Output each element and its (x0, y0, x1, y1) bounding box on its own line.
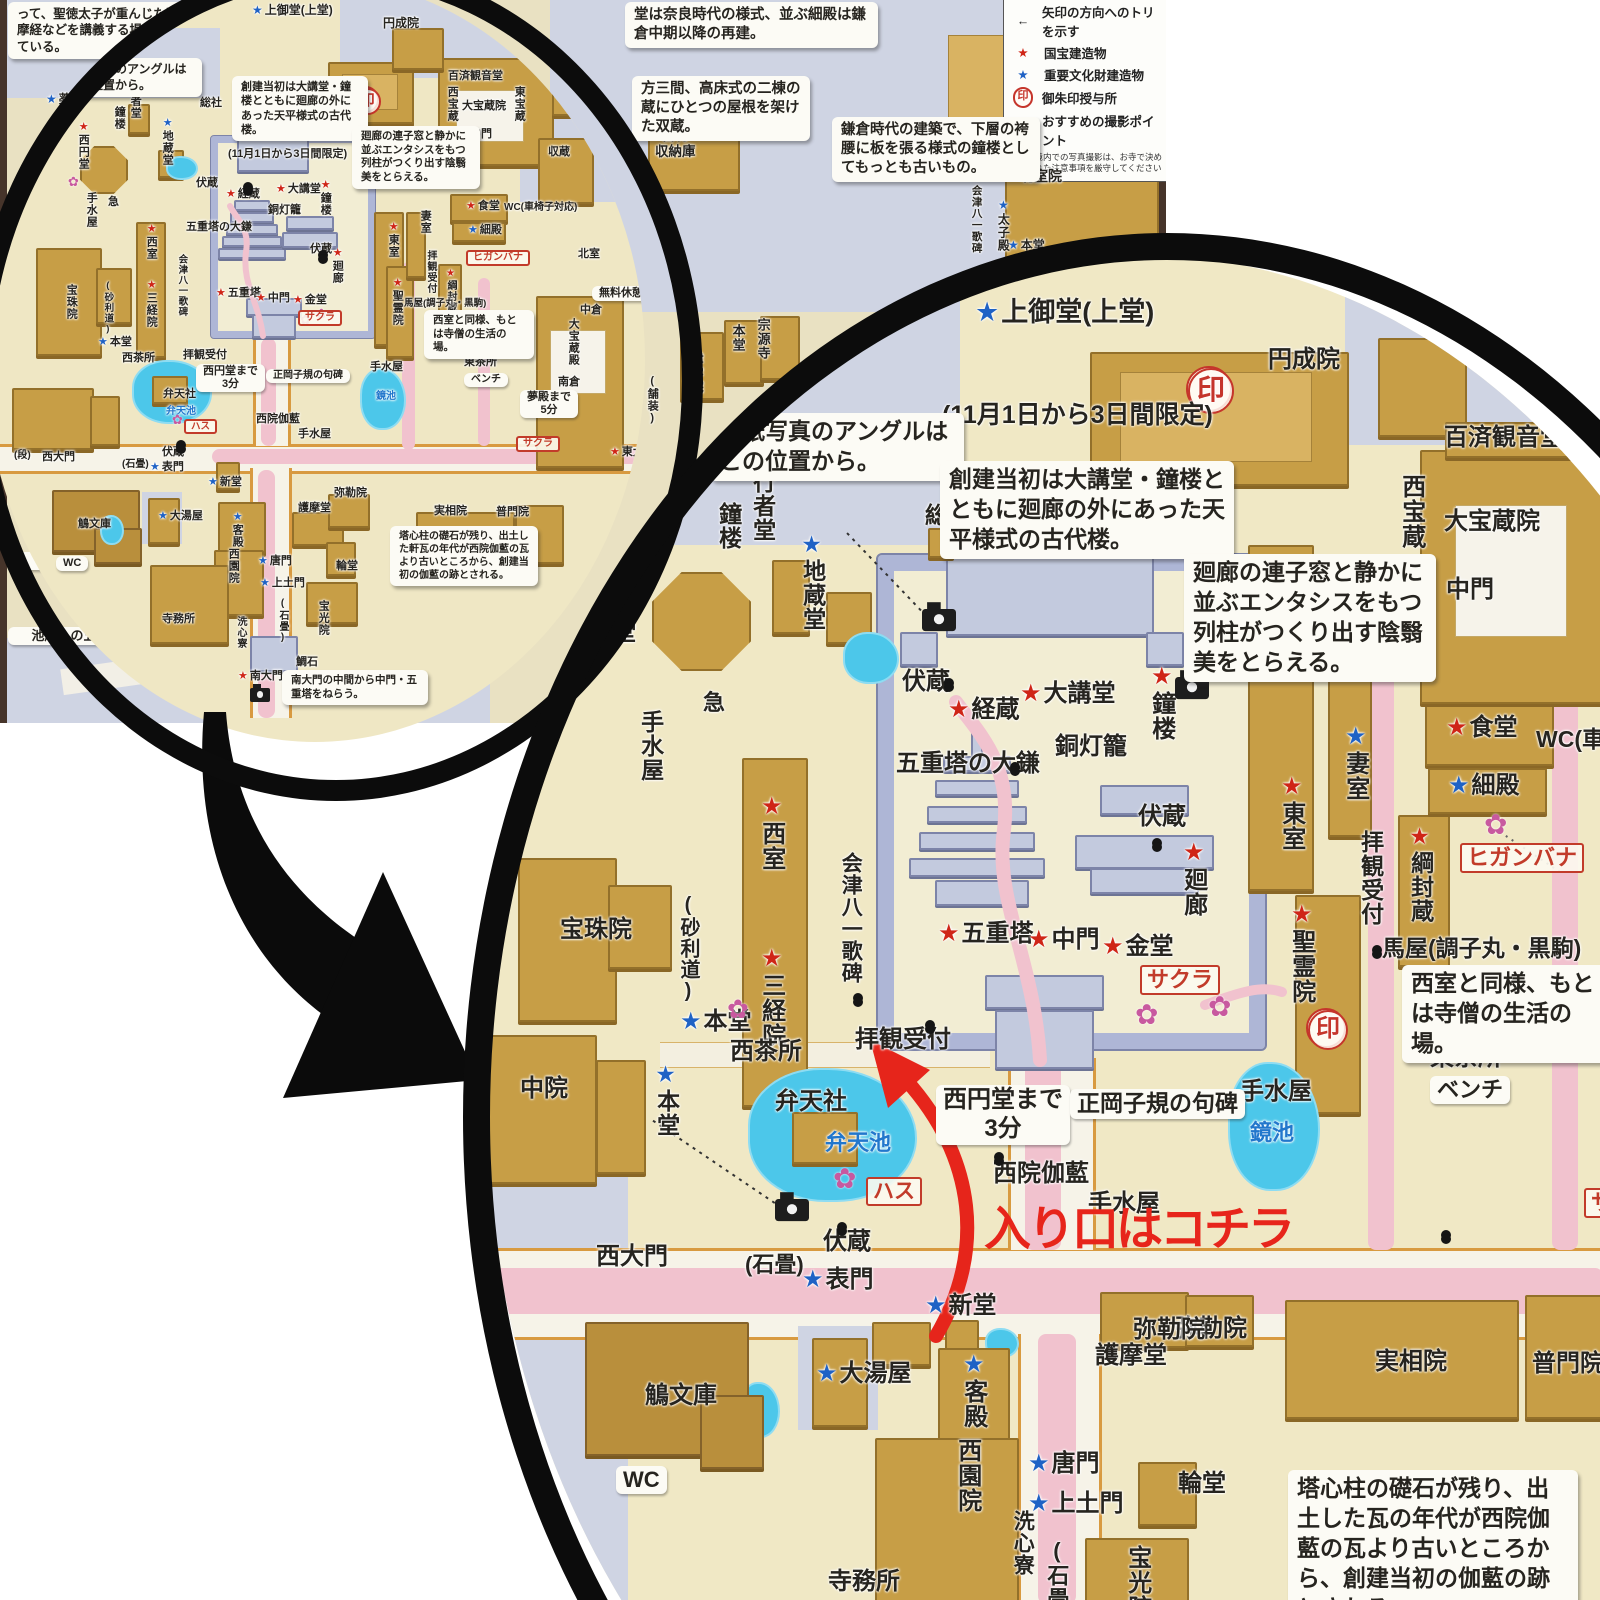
star-red-icon: ★ (1012, 45, 1034, 60)
pagoda (935, 780, 1019, 796)
map-label: 護摩堂 (298, 502, 331, 515)
star-red-icon: ★ (610, 446, 620, 458)
map-label: 西園院 (952, 1438, 981, 1513)
star-red-icon: ★ (145, 222, 157, 236)
map-label: 大宝蔵殿 (566, 318, 579, 366)
star-blue-icon: ★ (46, 92, 57, 106)
map-label: (石畳) (122, 459, 149, 471)
map-label: 西円堂まで 3分 (936, 1085, 1070, 1145)
map-label: 西大門 (42, 451, 75, 464)
star-blue-icon: ★ (689, 336, 704, 352)
map-label: ★三経院 (144, 278, 157, 328)
map-label: 鏡池 (1250, 1120, 1294, 1146)
map-label: 鵤文庫 (78, 518, 111, 531)
map-label: 創建当初は大講堂・鐘楼とともに廻廊の外にあった天平様式の古代楼。 (940, 461, 1234, 559)
map-label: ★新堂 (208, 476, 242, 489)
map-label: 洗心寮 (1010, 1510, 1035, 1576)
map-label: 収蔵 (548, 146, 570, 159)
legend-row: ← 矢印の方向へのトリを示す (1012, 2, 1162, 40)
star-red-icon: ★ (445, 268, 456, 280)
map-label: 夢殿まで 5分 (520, 390, 578, 418)
map-label: ★東室 (386, 220, 399, 258)
map-label: 輪堂 (336, 560, 358, 573)
map-label: 会津八一歌碑 (176, 254, 187, 317)
legend-row: ★ 国宝建造物 (1012, 43, 1162, 62)
map-label: 鐘楼 (714, 502, 742, 550)
map-label: ハス (866, 1177, 922, 1206)
star-red-icon: ★ (938, 920, 960, 947)
map-label: 寺務所 (162, 613, 195, 626)
map-label: 拝観受付 (855, 1026, 951, 1055)
map-label: 急 (703, 690, 725, 716)
star-blue-icon: ★ (1012, 67, 1034, 82)
map-label: 大宝蔵院 (462, 100, 506, 113)
map-label: 西院伽藍 (993, 1160, 1089, 1189)
kondo-hall (286, 216, 334, 230)
star-red-icon: ★ (758, 792, 785, 821)
map-label: (11月1日から3日間限定) (942, 400, 1213, 430)
map-label: (11月1日から3日間限定) (228, 148, 347, 161)
map-label: 急 (108, 196, 119, 209)
building (463, 1035, 597, 1184)
map-label: ★南大門 (238, 670, 283, 683)
map-label: 実相院 (434, 505, 467, 518)
map-label: ヒガンバナ (1460, 843, 1584, 873)
map-label: ★五重塔 (938, 920, 1034, 949)
map-label: ヒガンバナ (466, 250, 530, 266)
flower-icon: ✿ (172, 412, 183, 428)
legend-label: 御朱印授与所 (1042, 88, 1117, 107)
flower-icon: ✿ (833, 1162, 856, 1196)
legend-label: 国宝建造物 (1044, 43, 1107, 62)
star-blue-icon: ★ (258, 555, 268, 567)
pagoda (927, 806, 1027, 823)
map-label: 正岡子規の句碑 (266, 369, 350, 383)
marker-dot (1372, 945, 1382, 955)
flower-icon: ✿ (1208, 990, 1231, 1024)
map-label: (砂利道) (102, 280, 113, 336)
star-blue-icon: ★ (161, 116, 173, 130)
star-blue-icon: ★ (1028, 1450, 1050, 1477)
building (306, 582, 358, 624)
map-label: ★上御堂(上堂) (975, 296, 1154, 328)
star-red-icon: ★ (1180, 838, 1207, 867)
map-label: ★西室 (144, 222, 157, 260)
star-red-icon: ★ (77, 120, 89, 134)
map-label: ★食堂 (1446, 714, 1518, 743)
legend-row: ★ 重要文化財建造物 (1012, 65, 1162, 84)
star-red-icon: ★ (1446, 714, 1468, 741)
map-label: ★客殿 (958, 1350, 987, 1429)
flower-icon: ✿ (727, 994, 749, 1025)
star-blue-icon: ★ (260, 577, 270, 589)
star-red-icon: ★ (758, 944, 785, 973)
arrow-icon: ← (1012, 14, 1034, 28)
map-label: 宝珠院 (560, 916, 632, 945)
map-label: 西茶所 (122, 352, 155, 365)
map-label: 銅灯籠 (268, 204, 301, 217)
map-label: 拝観受付 (1356, 830, 1384, 926)
pond (843, 632, 899, 684)
map-label: ★中門 (256, 292, 290, 305)
map-label: 輪堂 (1178, 1470, 1226, 1499)
map-label: ★西室 (756, 792, 785, 871)
camera-icon (922, 608, 942, 627)
map-label: 中倉 (580, 304, 602, 317)
map-label: ★東室 (1276, 772, 1305, 851)
map-label: 馬屋(調子丸・黒駒) (404, 298, 486, 309)
building (150, 565, 229, 644)
map-label: 五重塔の大鎌 (186, 221, 252, 234)
star-red-icon: ★ (216, 287, 226, 299)
star-blue-icon: ★ (468, 224, 478, 236)
map-label: サ (1584, 1188, 1600, 1218)
map-label: 洗心寮 (234, 616, 246, 649)
map-label: ★唐門 (258, 555, 292, 568)
map-label: 鐘楼 (112, 106, 125, 130)
map-label: 百済観音堂 (1444, 424, 1564, 453)
map-label: 拝観受付 (424, 250, 436, 294)
star-blue-icon: ★ (802, 1266, 824, 1293)
flower-icon: ✿ (1135, 998, 1158, 1032)
map-label: 宗源寺 (755, 318, 771, 360)
star-blue-icon: ★ (816, 1360, 838, 1387)
map-label: ★大湯屋 (158, 510, 203, 523)
pagoda-base (935, 880, 1029, 906)
map-label: サクラ (1140, 965, 1220, 995)
map-label: WC (616, 1466, 667, 1494)
map-label: ベンチ (464, 373, 508, 387)
map-label: ★大講堂 (1020, 680, 1116, 709)
legend-label: 矢印の方向へのトリを示す (1042, 2, 1162, 40)
map-label: ★食堂 (466, 200, 500, 213)
map-label: (石畳) (1043, 1538, 1069, 1600)
map-label: 廻廊の連子窓と静かに並ぶエンタシスをもつ列柱がつくり出す陰翳美をとらえる。 (352, 126, 480, 189)
map-label: ★中門 (1028, 926, 1100, 955)
map-label: ★地蔵堂 (160, 116, 173, 166)
star-blue-icon: ★ (158, 510, 168, 522)
map-label: 創建当初は大講堂・鐘楼とともに廻廊の外にあった天平様式の古代楼。 (232, 76, 368, 141)
marker-dot (1010, 762, 1020, 772)
map-label: ★経蔵 (948, 696, 1020, 725)
star-blue-icon: ★ (960, 1350, 987, 1379)
star-red-icon: ★ (1288, 900, 1315, 929)
map-label: 総社 (200, 97, 222, 110)
seal-icon: 印 (1013, 87, 1034, 108)
star-blue-icon: ★ (252, 3, 263, 17)
map-label: 西宝蔵 (445, 86, 458, 122)
pagoda (919, 832, 1035, 850)
map-label: ★西円堂 (76, 120, 89, 170)
map-label: WC(車椅子対応) (504, 202, 577, 214)
map-label: 北室 (578, 248, 600, 261)
map-label: WC(車椅子対応) (1536, 726, 1600, 754)
map-label: 堂は奈良時代の様式、並ぶ細殿は鎌倉中期以降の再建。 (625, 2, 878, 48)
map-label: 弁天社 (775, 1088, 847, 1117)
map-label: 護摩堂 (1095, 1342, 1167, 1371)
map-label: ★細殿 (468, 224, 502, 237)
legend-label: おすすめの撮影ポイント (1042, 111, 1162, 149)
map-label: 表紙写真のアングルはこの位置から。 (710, 413, 964, 481)
map-label: 西茶所 (730, 1038, 802, 1067)
map-label: 手水屋 (370, 361, 403, 374)
map-label: ★聖霊院 (390, 276, 403, 326)
marker-dot (853, 993, 863, 1003)
map-label: 中門 (1446, 576, 1494, 605)
map-label: 弁天社 (163, 388, 196, 401)
star-red-icon: ★ (1148, 662, 1175, 691)
map-label: ★五重塔 (216, 287, 261, 300)
map-label: ★鐘楼 (1146, 662, 1175, 741)
map-label: ★新堂 (925, 1292, 997, 1321)
map-label: 円成院 (383, 16, 419, 30)
map-label: 西大門 (596, 1243, 668, 1272)
map-label: 西室と同様、もとは寺僧の生活の場。 (424, 310, 534, 359)
star-red-icon: ★ (1102, 933, 1124, 960)
building (12, 388, 94, 450)
map-label: ★廻廊 (330, 246, 343, 284)
marker-dot (1441, 1230, 1451, 1240)
map-label: 塔心柱の礎石が残り、出土した軒瓦の年代が西院伽藍の瓦より古いところから、創建当初… (390, 526, 538, 586)
map-label: 宝光院 (316, 600, 329, 636)
map-label: サクラ (298, 310, 342, 326)
map-label: 鵤文庫 (645, 1382, 717, 1411)
map-label: ハス (184, 419, 217, 434)
marker-dot (837, 1222, 847, 1232)
star-red-icon: ★ (145, 278, 157, 292)
map-label: 伏蔵 (902, 668, 950, 697)
pagoda (218, 248, 286, 259)
marker-dot (318, 250, 328, 260)
map-label: 手水屋 (1240, 1078, 1312, 1107)
chumon-gate (985, 975, 1104, 1009)
marker-dot (944, 678, 954, 688)
building (392, 28, 444, 70)
belltower (1146, 632, 1184, 666)
map-label: (砂利道) (676, 894, 700, 1003)
building (90, 396, 120, 446)
map-label: サクラ (516, 436, 560, 452)
map-label: 塔心柱の礎石が残り、出土した瓦の年代が西院伽藍の瓦より古いところから、創建当初の… (1288, 1470, 1578, 1600)
map-label: ★本堂 (652, 1062, 680, 1137)
marker-dot (176, 440, 186, 450)
map-label: 会津八一歌碑 (838, 852, 863, 984)
map-label: 妻室 (418, 210, 431, 234)
star-red-icon: ★ (276, 183, 286, 195)
map-label: ★地蔵堂 (798, 532, 826, 631)
map-label: 百済観音堂 (448, 70, 503, 83)
map-label: ★鐘楼 (318, 178, 331, 216)
star-red-icon: ★ (226, 188, 236, 200)
map-label: 手水屋 (84, 192, 97, 228)
map-label: ★上御堂(上堂) (252, 3, 333, 17)
map-label: 鏡池 (376, 391, 396, 403)
map-label: 鎌倉時代の建築で、下層の袴腰に板を張る様式の鐘楼としてもっとも古いもの。 (832, 117, 1040, 182)
map-label: ★表門 (150, 461, 184, 474)
map-label: ★上土門 (1028, 1490, 1124, 1519)
star-red-icon: ★ (1020, 680, 1042, 707)
star-red-icon: ★ (319, 178, 331, 192)
map-label: 宝光院 (1122, 1545, 1151, 1600)
map-label: 西宝蔵 (1396, 474, 1425, 549)
map-label: 弁天池 (825, 1130, 891, 1156)
map-label: 手水屋 (636, 710, 664, 782)
star-blue-icon: ★ (1342, 722, 1369, 751)
map-label: 実相院 (1375, 1348, 1447, 1377)
star-blue-icon: ★ (208, 476, 218, 488)
star-blue-icon: ★ (654, 1062, 680, 1089)
star-red-icon: ★ (1278, 772, 1305, 801)
map-label: ★唐門 (1028, 1450, 1100, 1479)
flower-icon: ✿ (1484, 808, 1507, 842)
marker-dot (994, 1152, 1004, 1162)
legend-label: 重要文化財建造物 (1044, 65, 1144, 84)
map-label: 西院伽藍 (256, 413, 300, 426)
star-blue-icon: ★ (150, 461, 160, 473)
map-label: (段) (14, 450, 31, 462)
star-blue-icon: ★ (975, 297, 999, 327)
map-label: ★細殿 (1448, 772, 1520, 801)
map-label: 南倉 (558, 376, 580, 389)
map-label: ★本堂 (98, 336, 132, 349)
map-label: 会津八一歌碑 (970, 185, 983, 254)
building (596, 1060, 646, 1174)
marker-dot (925, 1020, 935, 1030)
camera-icon (775, 1198, 795, 1217)
star-blue-icon: ★ (800, 532, 826, 559)
map-label: ★客殿 (230, 510, 243, 548)
map-label: 行者堂 (748, 470, 776, 542)
star-blue-icon: ★ (996, 198, 1010, 213)
marker-dot (1152, 838, 1162, 848)
goshuin-seal-icon: 印 (1306, 1008, 1346, 1048)
camera-icon (250, 688, 270, 701)
map-label: ★大講堂 (276, 183, 321, 196)
map-label: 手水屋 (298, 428, 331, 441)
map-label: 円成院 (1268, 346, 1340, 375)
map-label: 銅灯籠 (1055, 733, 1127, 762)
star-red-icon: ★ (256, 292, 266, 304)
map-label: 拝観受付 (183, 349, 227, 362)
map-label: ★廻廊 (1178, 838, 1207, 917)
star-red-icon: ★ (331, 246, 343, 260)
flower-icon: ✿ (68, 174, 79, 190)
map-label: ★綱封蔵 (1406, 824, 1434, 923)
pagoda (909, 858, 1045, 877)
map-label: (石畳) (745, 1252, 804, 1278)
star-blue-icon: ★ (1448, 772, 1470, 799)
marker-dot (243, 182, 253, 192)
map-label: 伏蔵 (823, 1228, 871, 1257)
star-blue-icon: ★ (231, 510, 243, 524)
star-blue-icon: ★ (1008, 238, 1019, 252)
map-label: 宝珠院 (64, 284, 77, 320)
star-red-icon: ★ (293, 294, 303, 306)
map-label: ★聖霊院 (1286, 900, 1315, 1004)
map-label: ★三経院 (756, 944, 785, 1048)
map-label: 廻廊の連子窓と静かに並ぶエンタシスをもつ列柱がつくり出す陰翳美をとらえる。 (1184, 554, 1436, 682)
map-label: 伏蔵 (196, 177, 218, 190)
sakura-path (261, 338, 276, 446)
map-label: 西室と同様、もとは寺僧の生活の場。 (1402, 965, 1600, 1063)
map-label: 寺務所 (828, 1568, 900, 1597)
nandaimon-gate (250, 636, 298, 672)
map-label: ★表門 (802, 1266, 874, 1295)
chumon-gate (995, 1010, 1094, 1069)
pagoda (234, 200, 270, 211)
map-label: 正岡子規の句碑 (1070, 1089, 1245, 1119)
star-blue-icon: ★ (925, 1292, 947, 1319)
map-label: ★金堂 (1102, 933, 1174, 962)
map-label: ★律学院 (688, 336, 704, 394)
map-label: ★本堂 (1008, 238, 1045, 252)
star-red-icon: ★ (391, 276, 403, 290)
map-label: ★上土門 (260, 577, 305, 590)
star-red-icon: ★ (238, 670, 248, 682)
map-label: 普門院 (1532, 1350, 1600, 1379)
legend-row: 印 御朱印授与所 (1012, 87, 1162, 108)
map-label: 大宝蔵院 (1444, 508, 1540, 537)
map-label: 中院 (520, 1075, 568, 1104)
map-label: 鯛石 (296, 656, 318, 669)
star-red-icon: ★ (466, 200, 476, 212)
map-label: ★大湯屋 (816, 1360, 912, 1389)
map-label: 弥勒院 (1133, 1316, 1205, 1345)
map-label: 馬屋(調子丸・黒駒) (1382, 935, 1581, 963)
map-label: 普門院 (496, 506, 529, 519)
star-red-icon: ★ (387, 220, 399, 234)
kyozo (900, 632, 938, 666)
annotated-temple-map: ← 矢印の方向へのトリを示す ★ 国宝建造物 ★ 重要文化財建造物 印 御朱印授… (0, 0, 1600, 1600)
star-red-icon: ★ (948, 696, 970, 723)
map-label: 本堂 (730, 324, 746, 352)
map-label: 方三間、高床式の二棟の蔵にひとつの屋根を架けた双蔵。 (632, 76, 810, 141)
entrance-note: 入り口はコチラ (984, 1190, 1292, 1259)
map-label: 西円堂まで 3分 (196, 364, 265, 392)
map-label: (石畳) (276, 598, 288, 644)
map-label: 弥勒院 (334, 487, 367, 500)
map-label: ベンチ (1430, 1076, 1510, 1104)
map-label: 東宝蔵 (512, 86, 525, 122)
map-label: (舗装) (645, 375, 658, 425)
map-label: 伏蔵 (1138, 803, 1186, 832)
map-label: ★妻室 (1340, 722, 1369, 801)
chumon-gate (252, 314, 296, 338)
map-label: WC (56, 556, 88, 571)
star-blue-icon: ★ (680, 1008, 702, 1035)
star-blue-icon: ★ (98, 336, 108, 348)
map-label: 西園院 (226, 548, 239, 584)
map-label: 南大門の中間から中門・五重塔をねらう。 (282, 670, 428, 705)
star-red-icon: ★ (1028, 926, 1050, 953)
star-red-icon: ★ (1408, 824, 1434, 851)
pagoda (222, 236, 282, 247)
